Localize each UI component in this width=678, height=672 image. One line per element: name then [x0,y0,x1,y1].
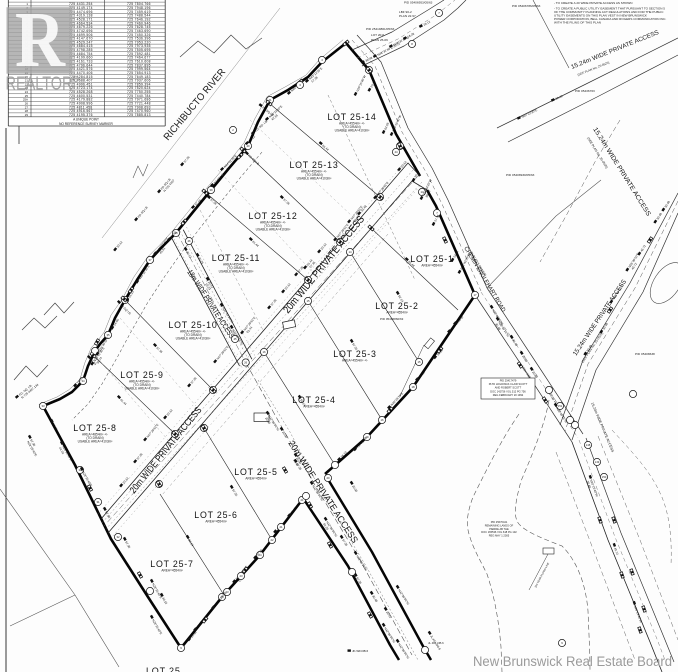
svg-text:PID 25670441: PID 25670441 [491,520,508,524]
svg-text:AREA=4554m²: AREA=4554m² [245,476,266,480]
svg-text:- TO CREATE A 20 WIDE PRIVATE: - TO CREATE A 20 WIDE PRIVATE ACCESS AS … [554,1,632,5]
svg-text:AND ROBERT SCOTT: AND ROBERT SCOTT [495,386,522,390]
svg-text:14: 14 [348,250,352,254]
svg-text:PID 05406953/05/63: PID 05406953/05/63 [404,1,433,5]
svg-text:46: 46 [187,239,191,243]
svg-text:PIERRE AB THE: PIERRE AB THE [489,527,509,531]
svg-text:PID 25417479: PID 25417479 [500,379,517,383]
svg-text:37: 37 [148,258,152,262]
svg-text:39: 39 [209,188,213,192]
svg-text:DOC 165536 VOL 618 PG 132: DOC 165536 VOL 618 PG 132 [481,530,517,534]
svg-text:PID 05408638: PID 05408638 [635,352,655,356]
svg-text:LOT 2011: LOT 2011 [371,33,385,37]
svg-text:AREA=4554m² +/-: AREA=4554m² +/- [342,358,368,362]
svg-text:32: 32 [116,535,120,539]
svg-text:PLTD HOLDINGS CLAIR SCOTT: PLTD HOLDINGS CLAIR SCOTT [489,382,528,386]
svg-text:29: 29 [25,113,29,117]
svg-text:LOT 25: LOT 25 [146,666,181,672]
svg-text:AREA=4554m²: AREA=4554m² [205,519,226,523]
svg-text:USABLE AREA=4103m²: USABLE AREA=4103m² [219,270,254,274]
svg-text:725 7885.813: 725 7885.813 [127,113,151,117]
svg-text:150: 150 [602,475,607,479]
svg-text:15: 15 [417,360,421,364]
svg-text:WITH THE FILING OF THIS PLAN: WITH THE FILING OF THIS PLAN [554,21,601,25]
svg-text:REG MAY 1 2005: REG MAY 1 2005 [489,534,510,538]
svg-text:AREA=4554m²: AREA=4554m² [421,263,442,267]
svg-text:DOC 142756 VOL 512 PG 756: DOC 142756 VOL 512 PG 756 [490,389,526,393]
svg-text:PID 05406786/05/63: PID 05406786/05/63 [512,4,541,8]
svg-text:AREA=4554m²: AREA=4554m² [161,568,182,572]
svg-text:PLAN 25-06: PLAN 25-06 [371,38,388,42]
svg-text:725 4195.376: 725 4195.376 [69,113,93,117]
svg-text:18: 18 [411,385,415,389]
svg-text:JK.WF.DB.6: JK.WF.DB.6 [352,649,369,653]
svg-text:PID 05406860/63: PID 05406860/63 [380,317,404,321]
svg-text:16: 16 [380,418,384,422]
svg-text:16: 16 [262,350,266,354]
svg-text:REALTOR: REALTOR [6,72,73,93]
svg-text:PID 05436763: PID 05436763 [575,89,595,93]
svg-text:17: 17 [473,293,477,297]
svg-text:NO REFERENCE SURVEY MARKER: NO REFERENCE SURVEY MARKER [59,122,113,126]
svg-text:PID 25419861/05/63: PID 25419861/05/63 [366,27,395,31]
svg-text:New Brunswick Real Estate Boar: New Brunswick Real Estate Board [473,653,672,669]
svg-text:20: 20 [326,476,330,480]
svg-text:149: 149 [595,460,600,464]
svg-text:USABLE AREA=4103m²: USABLE AREA=4103m² [335,129,370,133]
svg-text:33: 33 [41,404,45,408]
svg-text:AREA=4554m²: AREA=4554m² [386,310,407,314]
svg-text:15: 15 [306,299,310,303]
svg-text:USABLE AREA=4103m²: USABLE AREA=4103m² [125,387,160,391]
svg-text:44: 44 [394,150,398,154]
svg-text:USABLE AREA=4103m²: USABLE AREA=4103m² [297,177,332,181]
svg-text:21: 21 [279,525,283,529]
svg-text:26: 26 [244,361,248,365]
svg-text:PLAN 22.97: PLAN 22.97 [399,14,416,18]
svg-text:REG FEBRUARY 20 1992: REG FEBRUARY 20 1992 [493,393,524,397]
svg-text:USABLE AREA=4103m²: USABLE AREA=4103m² [176,337,211,341]
svg-text:USABLE AREA=4103m²: USABLE AREA=4103m² [78,440,113,444]
svg-text:23: 23 [239,574,243,578]
svg-text:PID 05408930/05/63: PID 05408930/05/63 [506,173,535,177]
svg-text:REMAINING LANDS OF: REMAINING LANDS OF [485,523,514,527]
svg-text:AREA=4554m²: AREA=4554m² [303,404,324,408]
svg-text:22: 22 [270,538,274,542]
svg-text:31: 31 [96,500,100,504]
svg-text:148: 148 [586,443,591,447]
